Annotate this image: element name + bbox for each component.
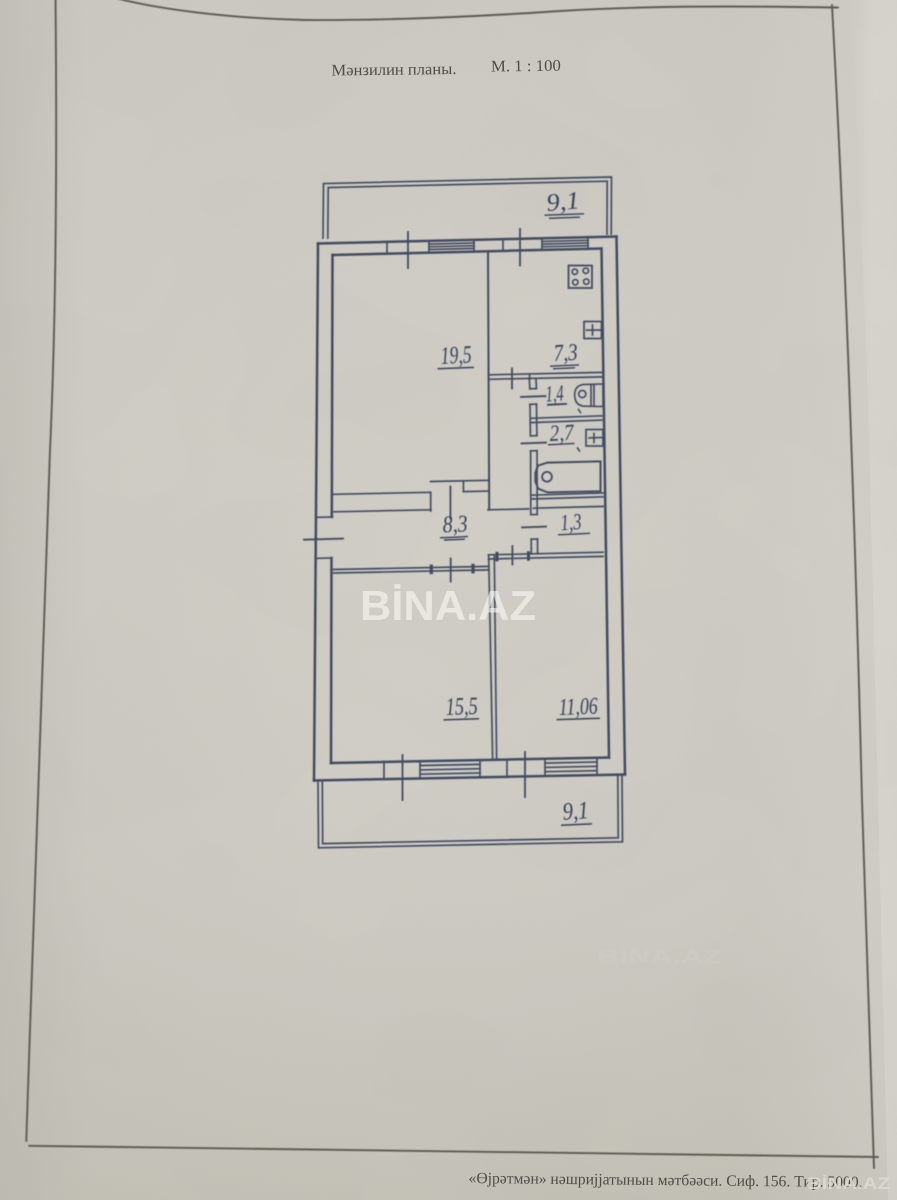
svg-text:15,5: 15,5 <box>445 693 478 721</box>
svg-text:2,7: 2,7 <box>549 420 576 446</box>
svg-text:7,3: 7,3 <box>553 340 578 367</box>
svg-text:9,1: 9,1 <box>562 797 590 826</box>
svg-text:Мәнзилин планы.: Мәнзилин планы. <box>331 60 456 80</box>
svg-text:1,4: 1,4 <box>545 381 564 407</box>
svg-text:11,06: 11,06 <box>558 694 598 721</box>
svg-text:BİNA.AZ: BİNA.AZ <box>360 582 536 629</box>
svg-text:9,1: 9,1 <box>545 187 580 217</box>
svg-text:BİNA.AZ: BİNA.AZ <box>597 947 723 968</box>
svg-text:8,3: 8,3 <box>442 511 468 538</box>
svg-text:1,3: 1,3 <box>560 509 583 535</box>
svg-text:М. 1 : 100: М. 1 : 100 <box>491 57 561 76</box>
svg-text:BİNA.AZ: BİNA.AZ <box>807 1175 890 1193</box>
svg-text:19,5: 19,5 <box>440 341 472 370</box>
